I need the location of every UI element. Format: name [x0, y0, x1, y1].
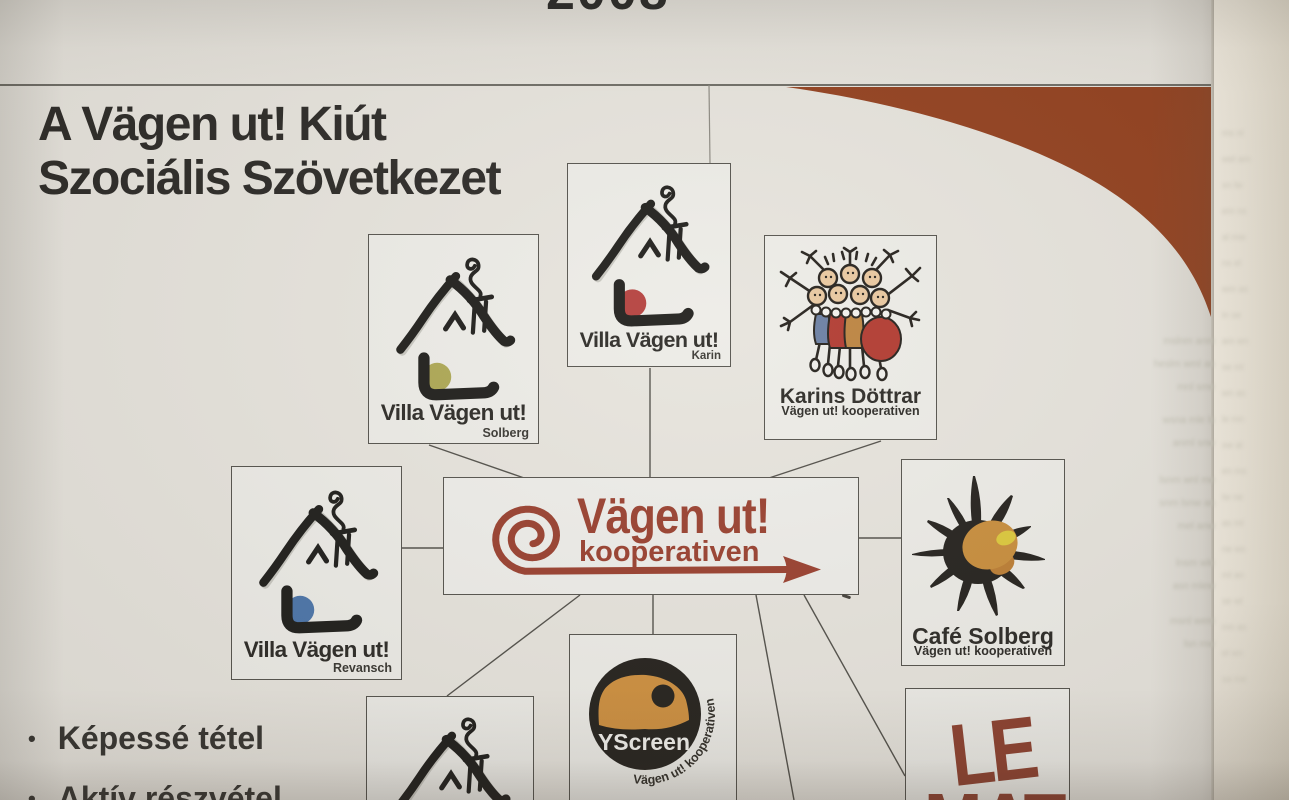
svg-text:YScreen: YScreen — [598, 729, 690, 755]
